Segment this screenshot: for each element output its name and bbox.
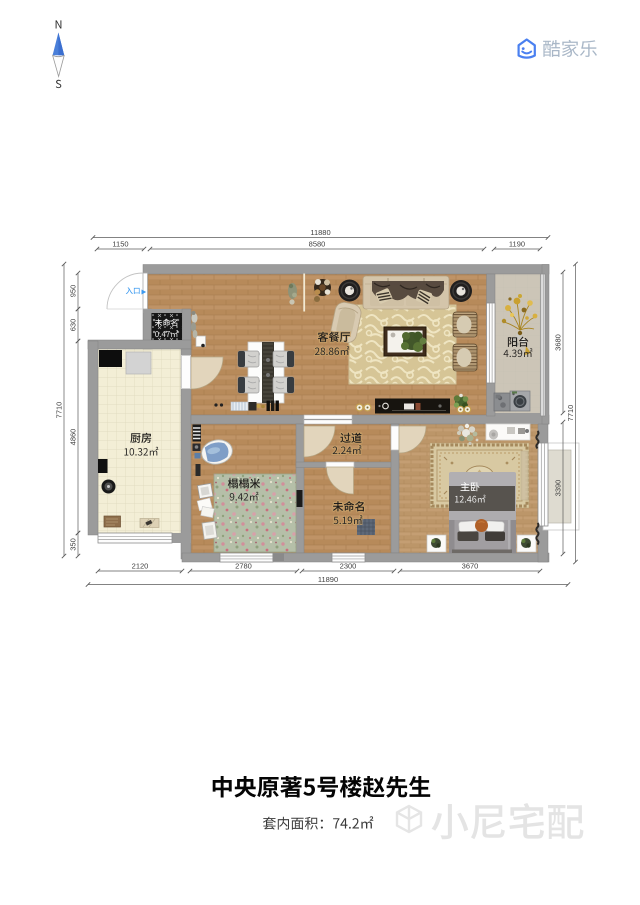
svg-text:1150: 1150 — [112, 240, 128, 249]
svg-text:2120: 2120 — [132, 562, 149, 571]
svg-text:630: 630 — [69, 319, 78, 332]
svg-text:11890: 11890 — [318, 575, 338, 584]
svg-text:1190: 1190 — [509, 240, 525, 249]
svg-text:3670: 3670 — [462, 562, 479, 571]
svg-text:4860: 4860 — [69, 429, 78, 446]
svg-text:350: 350 — [69, 538, 78, 551]
svg-text:2780: 2780 — [235, 562, 252, 571]
svg-text:8580: 8580 — [309, 240, 326, 249]
svg-text:11880: 11880 — [310, 228, 330, 237]
svg-text:2300: 2300 — [340, 562, 357, 571]
svg-text:950: 950 — [69, 285, 78, 298]
svg-text:7710: 7710 — [55, 402, 64, 419]
svg-text:3680: 3680 — [554, 334, 563, 351]
svg-text:7710: 7710 — [566, 405, 575, 422]
svg-text:3390: 3390 — [554, 480, 563, 497]
